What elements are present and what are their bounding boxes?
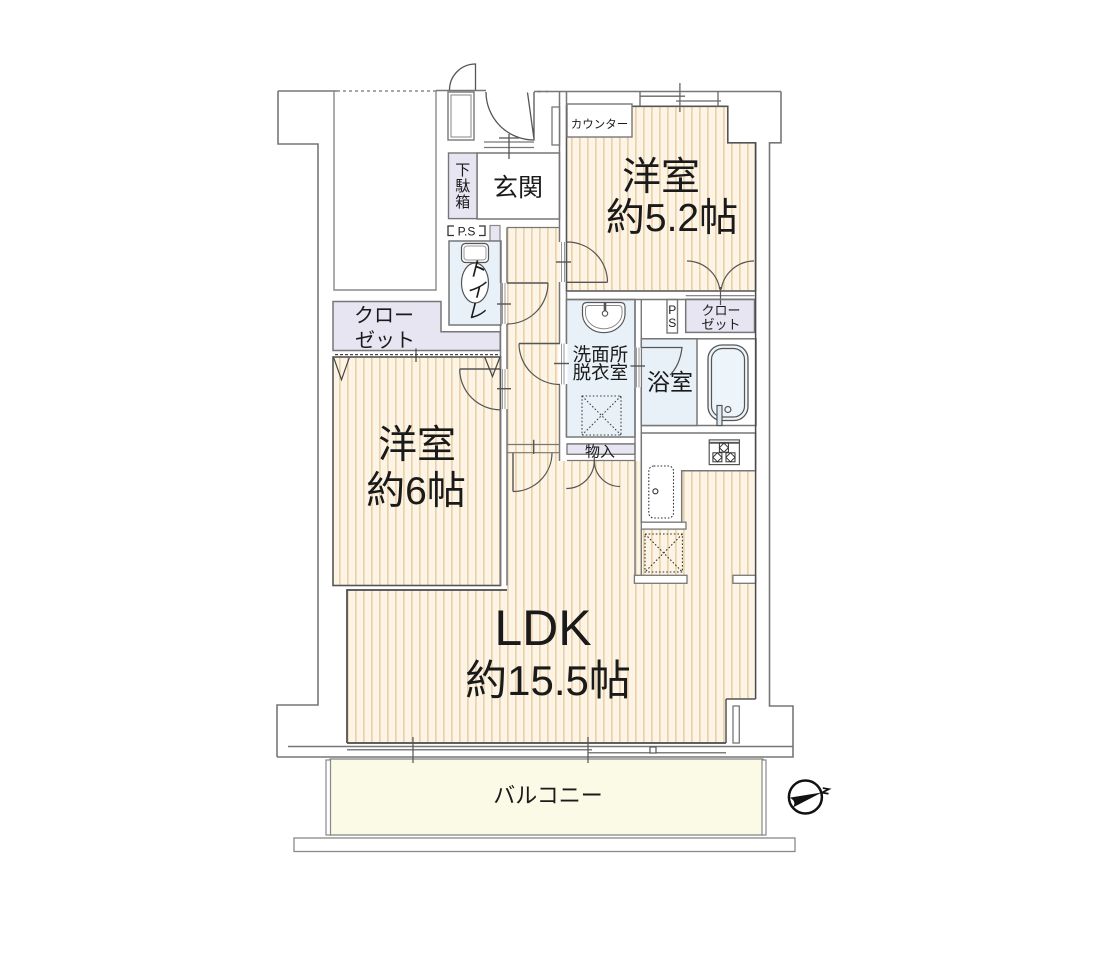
svg-text:洋室: 洋室 <box>622 156 700 199</box>
svg-text:バルコニー: バルコニー <box>493 783 603 808</box>
svg-text:クロー: クロー <box>701 303 740 318</box>
svg-text:カウンター: カウンター <box>571 118 629 131</box>
svg-text:玄関: 玄関 <box>493 174 543 202</box>
svg-text:LDK: LDK <box>494 600 591 656</box>
svg-text:洋室: 洋室 <box>378 424 456 467</box>
svg-text:駄: 駄 <box>455 178 470 195</box>
svg-text:レ: レ <box>466 301 486 323</box>
svg-text:P.S: P.S <box>458 225 476 239</box>
svg-text:浴室: 浴室 <box>647 369 693 395</box>
svg-text:ゼット: ゼット <box>355 329 415 352</box>
svg-text:物入: 物入 <box>585 444 615 461</box>
svg-text:ト: ト <box>466 259 486 281</box>
svg-text:約15.5帖: 約15.5帖 <box>465 657 631 704</box>
svg-text:約5.2帖: 約5.2帖 <box>606 197 738 240</box>
svg-text:イ: イ <box>466 280 487 302</box>
svg-text:クロー: クロー <box>354 304 414 327</box>
svg-text:下: 下 <box>455 162 470 179</box>
svg-text:P: P <box>668 303 676 317</box>
svg-text:S: S <box>668 316 676 330</box>
svg-text:ゼット: ゼット <box>701 317 740 332</box>
svg-text:箱: 箱 <box>455 194 470 211</box>
svg-text:約6帖: 約6帖 <box>366 470 466 513</box>
svg-text:脱衣室: 脱衣室 <box>573 362 629 383</box>
